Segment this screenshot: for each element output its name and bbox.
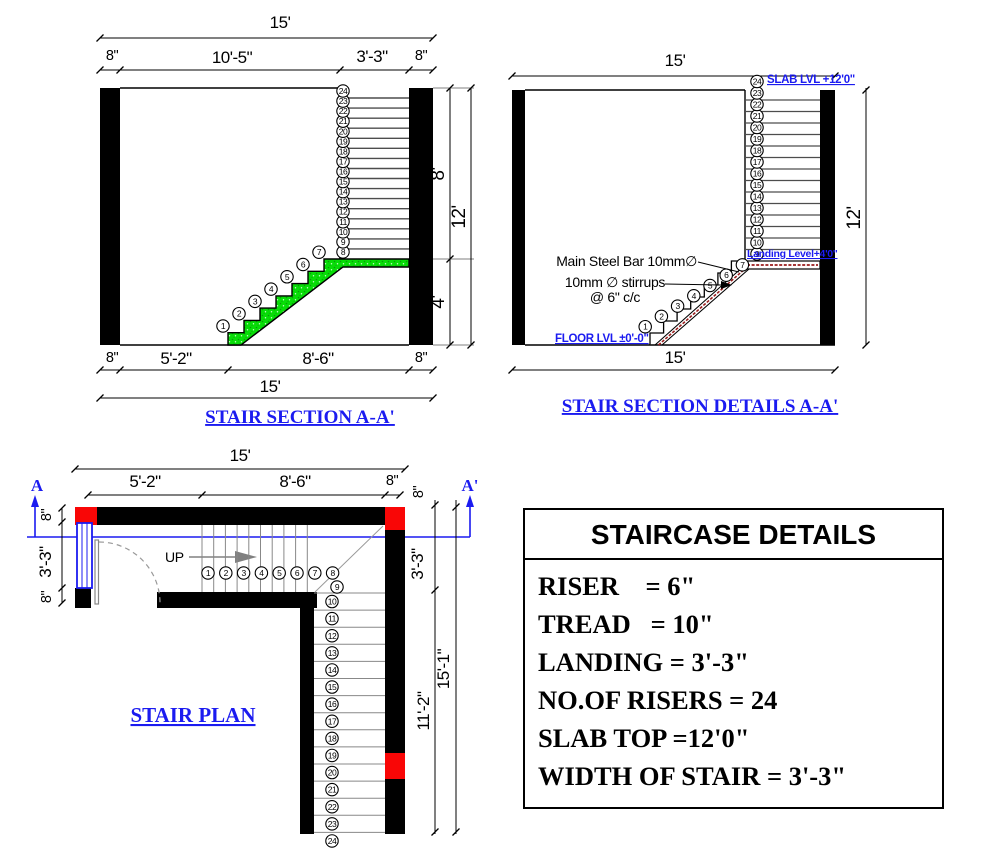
- dim-total-height: 12': [449, 205, 470, 228]
- riser-number: 16: [328, 699, 337, 709]
- stirrups-arrowhead: [721, 281, 732, 289]
- dim-total-length: 15'-1": [434, 648, 453, 689]
- riser-number: 17: [328, 716, 337, 726]
- riser-number: 16: [753, 169, 762, 179]
- right-wall: [820, 90, 835, 345]
- dim-wall-left: 8": [106, 350, 119, 366]
- slab-level-label: SLAB LVL +12'0": [767, 74, 855, 86]
- dim-lower-height: 4': [428, 295, 449, 308]
- riser-number: 14: [328, 665, 337, 675]
- riser-number: 13: [328, 648, 337, 658]
- riser-number: 15: [328, 682, 337, 692]
- section-marker-a-prime: A': [462, 476, 479, 495]
- dim-wall-right: 8": [415, 350, 428, 366]
- dim-run: 10'-5": [212, 48, 253, 67]
- window: [77, 523, 92, 588]
- riser-number: 21: [328, 785, 337, 795]
- dim-stair-width: 3'-3": [408, 548, 427, 580]
- wall-stub-left: [75, 588, 91, 608]
- details-row-slab-top: SLAB TOP =12'0": [538, 719, 942, 757]
- details-row-tread: TREAD = 10": [538, 605, 942, 643]
- riser-number: 22: [328, 802, 337, 812]
- up-label: UP: [165, 549, 184, 565]
- corner-break-line: [315, 526, 383, 592]
- riser-number: 23: [753, 88, 762, 98]
- details-table-title: STAIRCASE DETAILS: [525, 510, 942, 560]
- details-row-stair-width: WIDTH OF STAIR = 3'-3": [538, 757, 942, 795]
- stair-plan-view: 15' 5'-2" 8'-6" 8" A A' UP: [15, 445, 485, 857]
- dim-upper-height: 8': [428, 167, 449, 180]
- stair-section-details-view: 15' 9101112131415161718192021222324 1234…: [505, 50, 965, 430]
- details-row-riser: RISER = 6": [538, 567, 942, 605]
- landing-level-label: Landing Level+4'0": [747, 248, 838, 260]
- stair-section-view: 15' 8" 10'-5" 3'-3" 8" 89101112131415161…: [75, 8, 475, 440]
- riser-number: 18: [753, 146, 762, 156]
- door-swing-arc: [99, 542, 160, 604]
- riser-number: 23: [328, 819, 337, 829]
- staircase-details-table: STAIRCASE DETAILS RISER = 6" TREAD = 10"…: [523, 508, 944, 809]
- upper-flight-stack: 89101112131415161718192021222324: [337, 85, 409, 258]
- riser-number: 12: [328, 631, 337, 641]
- dim-wall-left: 8": [106, 48, 119, 64]
- riser-number: 24: [328, 836, 337, 846]
- riser-number: 10: [753, 238, 762, 248]
- dim-total-top: 15': [230, 446, 251, 465]
- dim-total-bottom: 15': [665, 348, 686, 367]
- dim-run-2: 8'-6": [279, 472, 311, 491]
- riser-number: 13: [753, 203, 762, 213]
- riser-number: 19: [328, 750, 337, 760]
- dim-total-bottom: 15': [260, 377, 281, 396]
- dim-flight-run: 8'-6": [302, 349, 334, 368]
- dim-clear: 5'-2": [160, 349, 192, 368]
- dim-wall: 8": [411, 486, 427, 499]
- details-row-landing: LANDING = 3'-3": [538, 643, 942, 681]
- plan-treads-vertical: [314, 593, 385, 832]
- door-leaf: [95, 540, 99, 604]
- details-row-risers-count: NO.OF RISERS = 24: [538, 681, 942, 719]
- riser-number: 24: [339, 86, 348, 96]
- riser-number: 10: [328, 597, 337, 607]
- dim-wall: 8": [39, 509, 55, 522]
- dim-run-1: 5'-2": [129, 472, 161, 491]
- details-table-rows: RISER = 6" TREAD = 10" LANDING = 3'-3" N…: [525, 560, 942, 795]
- plan-treads-horizontal: [202, 525, 307, 592]
- riser-number: 12: [753, 215, 762, 225]
- upper-flight-stack: 9101112131415161718192021222324: [745, 75, 820, 260]
- inner-wall-vertical: [300, 608, 314, 834]
- stair-drawing-sheet: 15' 8" 10'-5" 3'-3" 8" 89101112131415161…: [0, 0, 995, 857]
- riser-number: 24: [753, 77, 762, 87]
- riser-number: 11: [753, 226, 762, 236]
- riser-number: 15: [753, 180, 762, 190]
- left-wall: [512, 90, 525, 345]
- column-top-right: [385, 507, 405, 530]
- riser-number: 18: [328, 733, 337, 743]
- riser-number: 20: [753, 123, 762, 133]
- right-wall: [385, 530, 405, 834]
- dim-flight-length: 11'-2": [414, 691, 433, 731]
- up-arrowhead: [235, 551, 257, 563]
- riser-number: 14: [753, 192, 762, 202]
- dim-stair-width: 3'-3": [36, 546, 55, 578]
- section-arrow-left: [31, 495, 39, 507]
- left-wall: [100, 88, 120, 345]
- section-details-title: STAIR SECTION DETAILS A-A': [562, 396, 838, 417]
- inner-wall-horizontal: [157, 592, 317, 608]
- column-right-mid: [385, 753, 405, 779]
- riser-number: 19: [753, 134, 762, 144]
- dim-total-height: 12': [844, 206, 865, 229]
- riser-number: 17: [753, 157, 762, 167]
- riser-number: 22: [753, 100, 762, 110]
- riser-number: 20: [328, 768, 337, 778]
- dim-wall-right: 8": [415, 48, 428, 64]
- stirrups-label-1: 10mm ∅ stirrups: [565, 274, 666, 290]
- floor-level-label: FLOOR LVL ±0'-0": [555, 333, 649, 345]
- riser-number: 21: [753, 111, 762, 121]
- dim-total-top: 15': [270, 13, 291, 32]
- stirrups-label-2: @ 6" c/c: [590, 289, 641, 305]
- dim-wall: 8": [386, 473, 399, 489]
- section-arrow-right: [466, 495, 474, 507]
- main-steel-label: Main Steel Bar 10mm∅: [556, 253, 697, 269]
- dim-wall: 8": [39, 591, 55, 604]
- dim-total-top: 15': [665, 51, 686, 70]
- plan-title: STAIR PLAN: [130, 703, 255, 727]
- dim-flight-width: 3'-3": [356, 47, 388, 66]
- riser-number: 11: [328, 614, 337, 624]
- section-marker-a: A: [31, 476, 44, 495]
- top-wall: [75, 507, 405, 525]
- section-title: STAIR SECTION A-A': [205, 407, 395, 428]
